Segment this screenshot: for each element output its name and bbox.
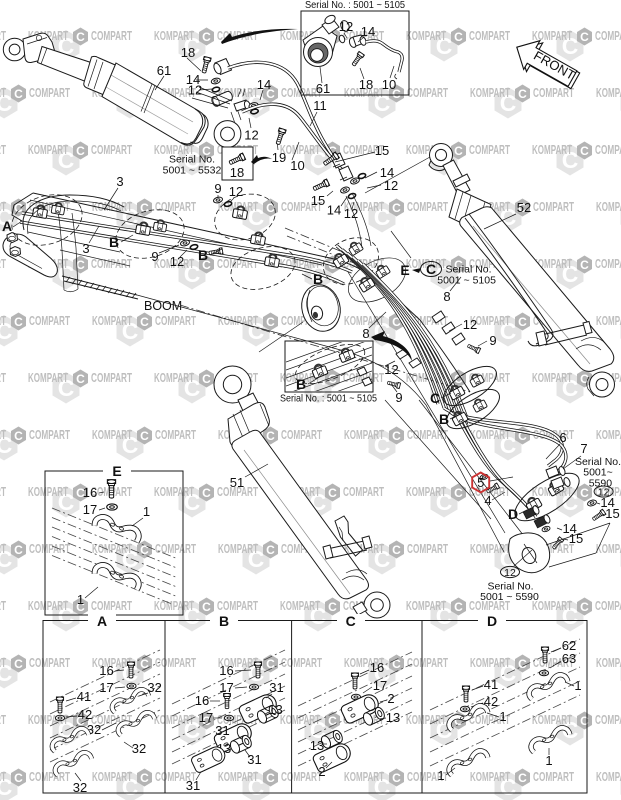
svg-text:17: 17 [219, 680, 233, 695]
svg-text:63: 63 [562, 651, 576, 666]
svg-text:12: 12 [244, 128, 258, 143]
svg-text:16: 16 [99, 663, 113, 678]
svg-text:12: 12 [229, 184, 243, 199]
svg-text:32: 32 [73, 780, 87, 795]
svg-text:61: 61 [316, 81, 330, 96]
svg-text:2: 2 [318, 764, 325, 779]
svg-text:7: 7 [580, 441, 587, 456]
svg-text:12: 12 [384, 178, 398, 193]
svg-text:9: 9 [214, 181, 221, 196]
svg-text:1: 1 [77, 592, 84, 607]
svg-text:16: 16 [195, 693, 209, 708]
svg-text:B: B [439, 411, 449, 427]
svg-text:12: 12 [170, 254, 184, 269]
svg-text:41: 41 [484, 677, 498, 692]
svg-text:10: 10 [382, 77, 396, 92]
svg-text:17: 17 [199, 710, 213, 725]
svg-text:6: 6 [559, 430, 566, 445]
svg-text:5001 ~ 5105: 5001 ~ 5105 [437, 275, 496, 287]
svg-text:1: 1 [437, 768, 444, 783]
svg-text:13: 13 [386, 710, 400, 725]
svg-text:18: 18 [359, 77, 373, 92]
svg-text:Serial No. : 5001 ~ 5105: Serial No. : 5001 ~ 5105 [305, 0, 405, 11]
svg-text:15: 15 [375, 143, 389, 158]
svg-text:12: 12 [344, 206, 358, 221]
svg-text:17: 17 [83, 502, 97, 517]
svg-text:18: 18 [181, 45, 195, 60]
svg-text:15: 15 [311, 193, 325, 208]
svg-text:19: 19 [272, 150, 286, 165]
svg-text:1: 1 [499, 709, 506, 724]
svg-text:E: E [112, 463, 121, 479]
svg-text:B: B [219, 613, 229, 629]
svg-text:E: E [400, 262, 409, 278]
svg-text:5001 ~ 5532: 5001 ~ 5532 [163, 165, 222, 177]
svg-text:17: 17 [99, 680, 113, 695]
svg-text:B: B [109, 234, 119, 250]
svg-text:31: 31 [269, 680, 283, 695]
svg-text:31: 31 [247, 752, 261, 767]
svg-text:12: 12 [339, 19, 353, 34]
svg-text:9: 9 [151, 249, 158, 264]
svg-text:16: 16 [219, 663, 233, 678]
svg-text:8: 8 [443, 289, 450, 304]
svg-text:31: 31 [186, 778, 200, 793]
svg-text:17: 17 [373, 678, 387, 693]
svg-text:9: 9 [489, 333, 496, 348]
svg-text:C: C [426, 261, 436, 277]
svg-text:13: 13 [268, 702, 282, 717]
svg-text:1: 1 [143, 504, 150, 519]
svg-text:13: 13 [310, 738, 324, 753]
svg-text:B: B [296, 376, 306, 392]
svg-text:1: 1 [545, 753, 552, 768]
svg-text:4: 4 [484, 493, 491, 508]
svg-text:51: 51 [230, 475, 244, 490]
svg-text:D: D [487, 613, 497, 629]
svg-text:15: 15 [569, 531, 583, 546]
svg-text:42: 42 [78, 707, 92, 722]
svg-text:D: D [508, 506, 518, 522]
svg-text:14: 14 [361, 24, 375, 39]
svg-text:10: 10 [290, 158, 304, 173]
svg-text:52: 52 [517, 200, 531, 215]
svg-text:12: 12 [188, 83, 202, 98]
svg-text:32: 32 [147, 680, 161, 695]
svg-text:14: 14 [327, 203, 341, 218]
svg-text:A: A [2, 218, 12, 234]
svg-text:A: A [97, 613, 107, 629]
svg-text:5: 5 [477, 475, 484, 490]
svg-text:12: 12 [504, 567, 516, 579]
svg-text:15: 15 [605, 506, 619, 521]
svg-text:9: 9 [395, 390, 402, 405]
svg-text:C: C [430, 390, 440, 406]
svg-text:3: 3 [82, 241, 89, 256]
svg-text:18: 18 [230, 165, 244, 180]
svg-text:14: 14 [257, 77, 271, 92]
svg-text:12: 12 [384, 362, 398, 377]
svg-text:12: 12 [463, 317, 477, 332]
svg-text:Serial No. : 5001 ~ 5105: Serial No. : 5001 ~ 5105 [280, 393, 377, 405]
svg-text:16: 16 [370, 660, 384, 675]
svg-text:B: B [198, 247, 208, 263]
svg-text:41: 41 [77, 689, 91, 704]
svg-text:16: 16 [83, 485, 97, 500]
svg-text:2: 2 [387, 691, 394, 706]
svg-text:5001 ~ 5590: 5001 ~ 5590 [480, 591, 539, 603]
svg-text:1: 1 [574, 678, 581, 693]
svg-text:32: 32 [132, 741, 146, 756]
svg-text:3: 3 [116, 174, 123, 189]
svg-text:8: 8 [362, 326, 369, 341]
svg-text:C: C [346, 613, 356, 629]
svg-text:11: 11 [313, 98, 327, 113]
svg-text:61: 61 [157, 63, 171, 78]
svg-text:31: 31 [215, 723, 229, 738]
